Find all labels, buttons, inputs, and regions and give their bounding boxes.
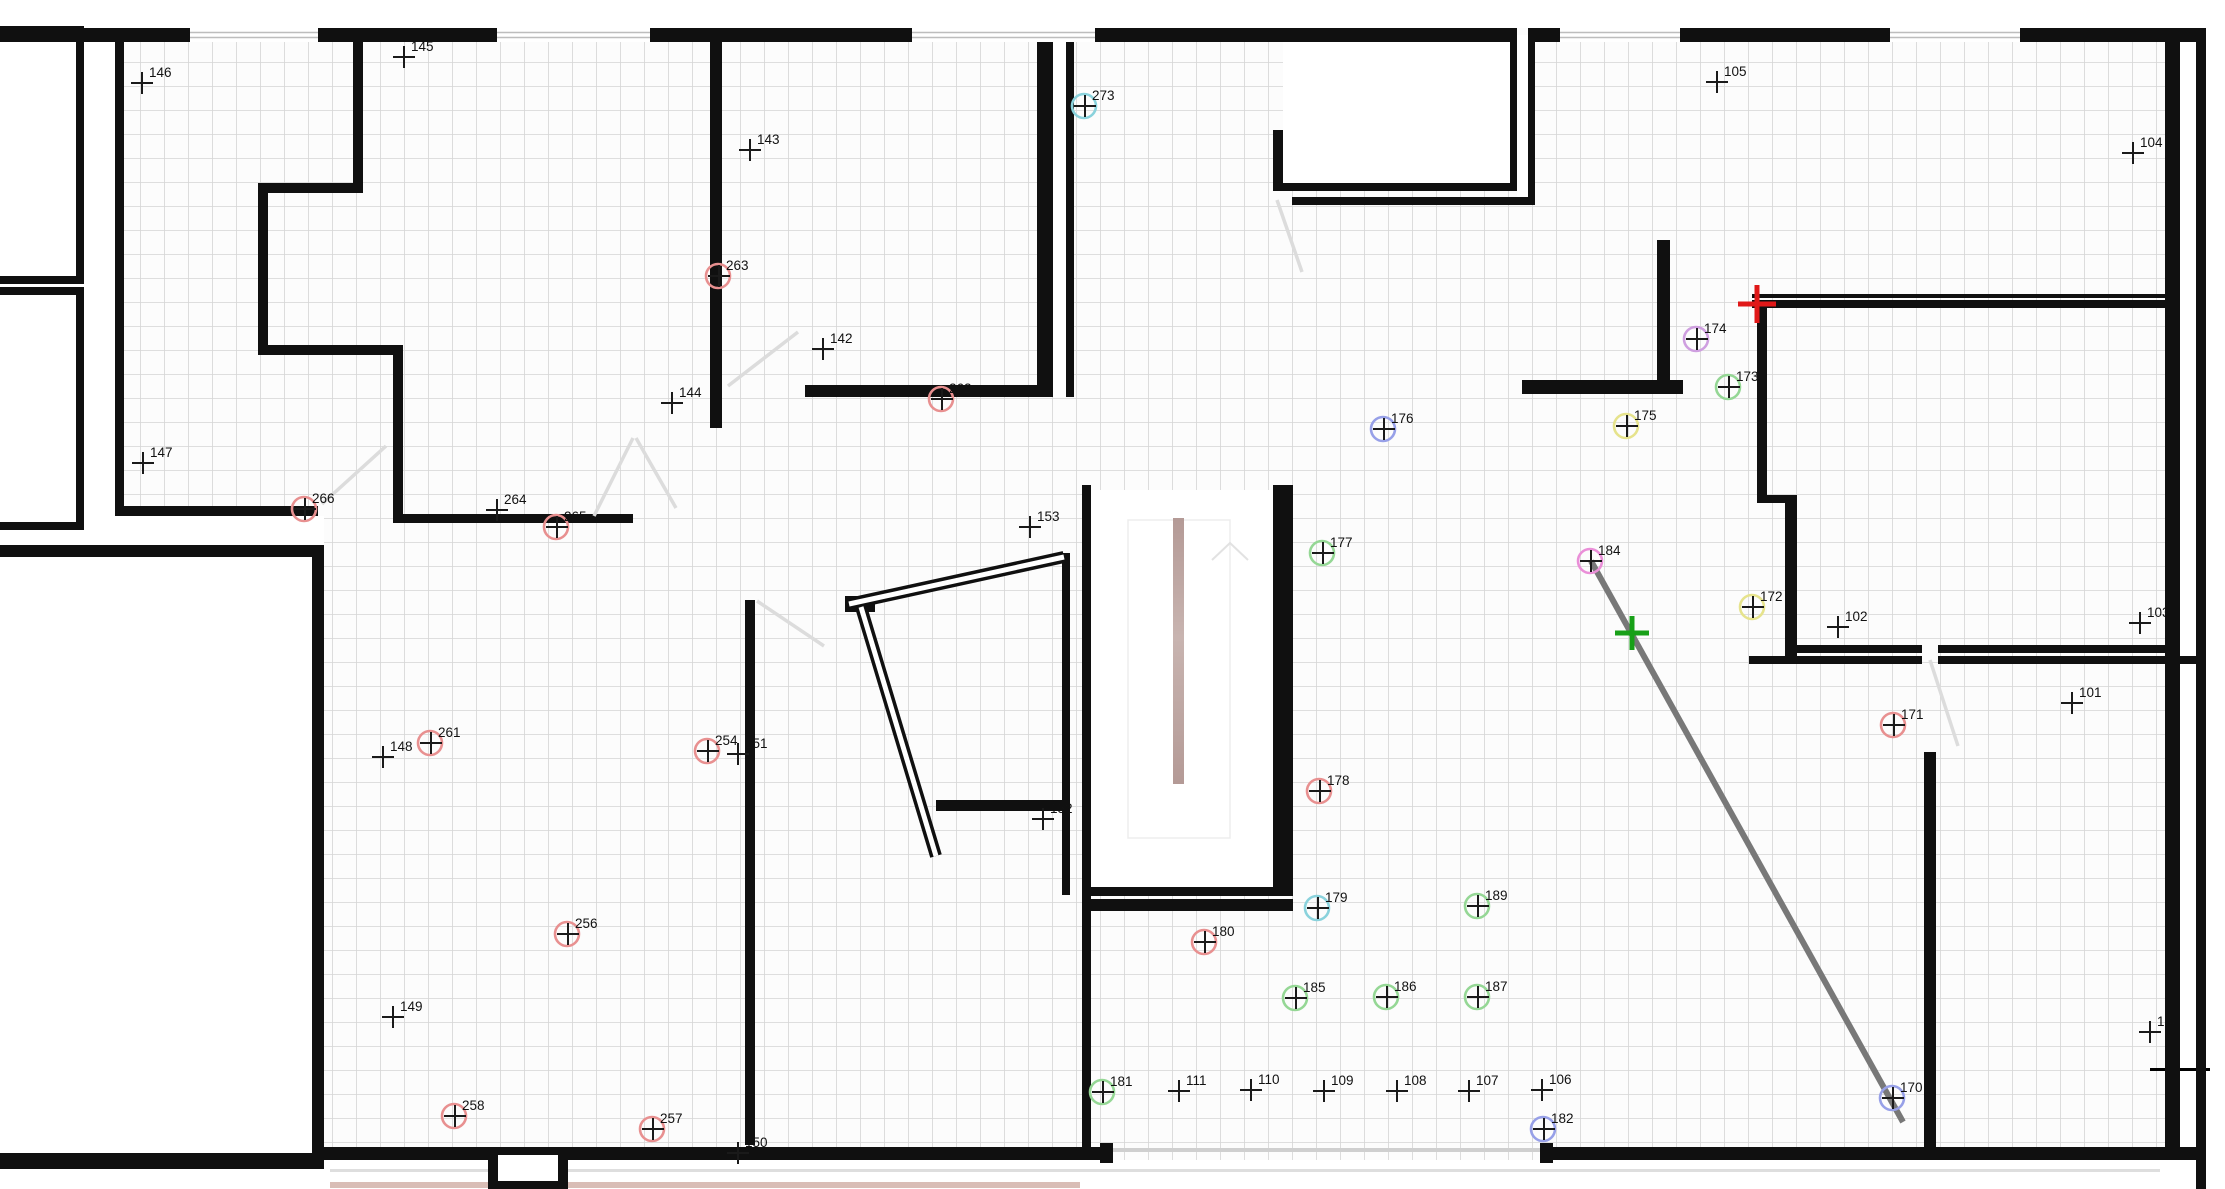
wall-segment: [0, 522, 84, 530]
white-room-area: [1517, 35, 1528, 205]
wall-segment: [1540, 1143, 1553, 1163]
wall-segment: [1657, 240, 1670, 390]
wall-segment: [1528, 35, 1535, 205]
point-label: 179: [1325, 890, 1348, 905]
point-label: 182: [1551, 1111, 1574, 1126]
wall-segment: [115, 28, 124, 516]
wall-segment: [0, 545, 324, 557]
wall-segment: [0, 1153, 324, 1169]
wall-segment: [1037, 42, 1053, 397]
wall-segment: [1062, 553, 1070, 895]
point-label: 143: [757, 132, 780, 147]
wide-opening-threshold: [1113, 1148, 1540, 1152]
wall-segment: [1938, 645, 2165, 653]
point-label: 173: [1736, 369, 1759, 384]
point-label: 184: [1598, 543, 1621, 558]
point-label: 100: [2157, 1014, 2180, 1029]
wall-segment: [2165, 28, 2180, 1160]
point-label: 263: [726, 258, 749, 273]
point-label: 262: [949, 381, 972, 396]
wall-segment: [393, 345, 403, 516]
wall-segment: [1752, 294, 2165, 298]
window-gap: [497, 28, 650, 42]
point-label: 180: [1212, 924, 1235, 939]
wall-segment: [1510, 42, 1517, 191]
point-label: 186: [1394, 979, 1417, 994]
wall-segment: [353, 28, 363, 190]
wall-segment: [1785, 500, 1797, 658]
stair-center-stripe: [1173, 518, 1184, 784]
point-label: 104: [2140, 135, 2163, 150]
wall-segment: [745, 600, 755, 1145]
wall-segment: [1082, 899, 1293, 911]
point-label: 175: [1634, 408, 1657, 423]
point-label: 102: [1845, 609, 1868, 624]
wall-segment: [1790, 645, 1922, 653]
window-gap: [1890, 28, 2020, 42]
wall-segment: [312, 545, 324, 1166]
point-label: 257: [660, 1111, 683, 1126]
point-label: 172: [1760, 589, 1783, 604]
point-label: 149: [400, 999, 423, 1014]
wall-segment: [1749, 656, 1922, 664]
wall-segment: [324, 1147, 1100, 1160]
wall-segment: [710, 28, 722, 428]
wall-segment: [258, 345, 400, 355]
wall-segment: [1540, 1147, 2196, 1160]
white-room-area: [1053, 42, 1066, 397]
point-label: 170: [1900, 1080, 1923, 1095]
point-label: 110: [1258, 1072, 1280, 1087]
window-gap: [1560, 28, 1680, 42]
wall-segment: [1292, 197, 1535, 205]
wall-segment: [1938, 656, 2196, 664]
point-label: 181: [1110, 1074, 1133, 1089]
wall-segment: [0, 26, 84, 34]
point-label: 265: [564, 509, 587, 524]
white-room-area: [115, 516, 324, 545]
white-room-area: [0, 0, 2225, 28]
point-label: 171: [1901, 707, 1924, 722]
point-label: 147: [150, 445, 173, 460]
wall-segment: [115, 506, 318, 516]
wall-segment: [1273, 130, 1283, 191]
point-label: 264: [504, 492, 527, 507]
point-label: 144: [679, 385, 702, 400]
window-gap: [912, 28, 1095, 42]
floorplan-canvas[interactable]: 1001011021031041051061071081091101111421…: [0, 0, 2225, 1189]
point-label: 258: [462, 1098, 485, 1113]
point-label: 109: [1331, 1073, 1354, 1088]
point-label: 152: [1050, 801, 1073, 816]
floorplan-svg[interactable]: 1001011021031041051061071081091101111421…: [0, 0, 2225, 1189]
wall-segment: [650, 28, 912, 42]
wall-segment: [258, 183, 363, 193]
point-label: 107: [1476, 1073, 1499, 1088]
point-label: 185: [1303, 980, 1326, 995]
point-label: 176: [1391, 411, 1414, 426]
wall-segment: [1273, 183, 1517, 191]
point-label: 177: [1330, 535, 1353, 550]
point-label: 105: [1724, 64, 1747, 79]
point-label: 145: [411, 39, 434, 54]
wall-segment: [1757, 300, 1767, 500]
white-room-area: [12, 557, 312, 1153]
point-label: 101: [2079, 685, 2102, 700]
paving-line: [330, 1169, 2160, 1172]
wall-segment: [1082, 895, 1091, 1153]
point-label: 151: [745, 736, 768, 751]
point-label: 153: [1037, 509, 1060, 524]
wall-segment: [1924, 752, 1936, 1160]
point-label: 174: [1704, 321, 1727, 336]
wall-segment: [258, 183, 268, 352]
wall-segment: [0, 276, 84, 284]
point-label: 273: [1092, 88, 1115, 103]
wall-segment: [76, 287, 84, 530]
wall-segment: [2196, 28, 2206, 1189]
window-gap: [190, 28, 318, 42]
point-label: 106: [1549, 1072, 1572, 1087]
point-label: 146: [149, 65, 172, 80]
point-label: 103: [2147, 605, 2170, 620]
wall-segment: [1066, 42, 1074, 397]
wall-segment: [1082, 485, 1091, 895]
wall-segment: [1095, 28, 1517, 42]
white-room-area: [1283, 42, 1510, 183]
point-label: 189: [1485, 888, 1508, 903]
point-label: 187: [1485, 979, 1508, 994]
wall-segment: [393, 514, 633, 523]
wall-segment: [318, 28, 497, 42]
wall-segment: [1522, 380, 1683, 394]
rosy-strip: [330, 1182, 1080, 1188]
point-label: 142: [830, 331, 853, 346]
pillar-core: [498, 1155, 558, 1181]
wall-segment: [1273, 485, 1293, 895]
point-label: 108: [1404, 1073, 1427, 1088]
point-label: 148: [390, 739, 413, 754]
point-label: 178: [1327, 773, 1350, 788]
wall-segment: [1100, 1143, 1113, 1163]
point-label: 266: [312, 491, 335, 506]
point-label: 254: [715, 733, 738, 748]
wall-segment: [1752, 300, 2165, 308]
wall-segment: [1082, 887, 1293, 896]
point-label: 256: [575, 916, 598, 931]
wall-segment: [76, 26, 84, 284]
point-label: 111: [1186, 1073, 1207, 1088]
point-label: 150: [745, 1135, 768, 1150]
wall-segment: [0, 287, 84, 295]
wall-segment: [1680, 28, 1890, 42]
point-label: 261: [438, 725, 461, 740]
